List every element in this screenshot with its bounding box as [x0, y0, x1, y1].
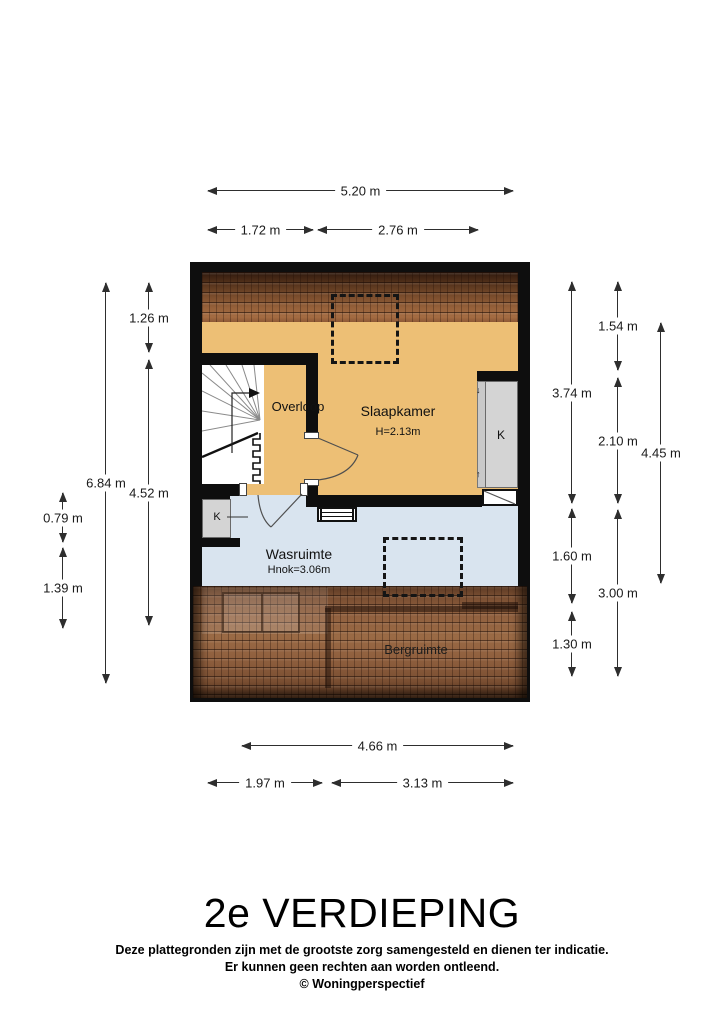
dim-label: 1.30 m	[548, 636, 596, 653]
dim-right-wasruimte: 1.60 m	[571, 509, 572, 603]
dim-label: 1.60 m	[548, 548, 596, 565]
dim-label: 4.45 m	[637, 445, 685, 462]
arrow-left-icon	[331, 779, 341, 787]
roof-step-horizontal	[325, 606, 518, 612]
skylight-wasruimte	[383, 537, 463, 597]
dim-right-bergruimte: 1.30 m	[571, 612, 572, 676]
dim-right-lower: 3.00 m	[617, 510, 618, 676]
arrow-up-icon	[145, 359, 153, 369]
arrow-up-icon	[59, 547, 67, 557]
dim-left-total: 6.84 m	[105, 283, 106, 683]
dim-label: 1.39 m	[39, 580, 87, 597]
dim-right-slaapkamer: 3.74 m	[571, 282, 572, 503]
dim-label: 1.26 m	[125, 309, 173, 326]
dim-left-lower: 1.39 m	[62, 548, 63, 628]
arrow-right-icon	[504, 779, 514, 787]
dim-left-closet: 0.79 m	[62, 493, 63, 542]
dim-label: 2.76 m	[372, 223, 424, 238]
arrow-down-icon	[102, 674, 110, 684]
dim-label: 5.20 m	[335, 184, 387, 199]
roof-area-bergruimte	[193, 586, 527, 698]
dim-bottom-left: 1.97 m	[208, 782, 322, 783]
diagonal-box-line	[484, 491, 515, 504]
bergruimte-label: Bergruimte	[378, 642, 454, 657]
dim-label: 3.00 m	[594, 585, 642, 602]
wasruimte-label: Wasruimte	[239, 546, 359, 562]
arrow-down-icon	[614, 494, 622, 504]
arrow-down-icon	[145, 616, 153, 626]
arrow-left-icon	[207, 779, 217, 787]
arrow-up-icon	[614, 281, 622, 291]
dormer-outline	[222, 592, 300, 633]
arrow-left-icon	[207, 187, 217, 195]
floorplan-page: ↓ ↑ K K B	[0, 0, 724, 1024]
arrow-up-icon	[59, 492, 67, 502]
dim-label: 6.84 m	[82, 475, 130, 492]
arrow-down-icon	[614, 667, 622, 677]
dim-label: 4.66 m	[352, 739, 404, 754]
slaapkamer-height: H=2.13m	[338, 426, 458, 438]
arrow-up-icon	[614, 509, 622, 519]
arrow-up-icon	[102, 282, 110, 292]
dim-top-total: 5.20 m	[208, 190, 513, 191]
door-leaf-slaapkamer	[318, 438, 358, 455]
dim-label: 1.72 m	[235, 223, 287, 238]
dim-bottom-right: 3.13 m	[332, 782, 513, 783]
arrow-down-icon	[568, 667, 576, 677]
arrow-down-icon	[568, 494, 576, 504]
dim-left-inner: 4.52 m	[148, 360, 149, 625]
arrow-down-icon	[614, 361, 622, 371]
arrow-up-icon	[145, 282, 153, 292]
arrow-down-icon	[657, 574, 665, 584]
arrow-down-icon	[59, 533, 67, 543]
door-arc-wasruimte	[258, 495, 271, 527]
arrow-left-icon	[207, 226, 217, 234]
dim-top-right: 2.76 m	[318, 229, 478, 230]
disclaimer-line-2: Er kunnen geen rechten aan worden ontlee…	[0, 959, 724, 976]
dim-right-total: 4.45 m	[660, 323, 661, 583]
arrow-down-icon	[145, 343, 153, 353]
arrow-up-icon	[568, 611, 576, 621]
dim-label: 1.54 m	[594, 318, 642, 335]
dim-bottom-total: 4.66 m	[242, 745, 513, 746]
dim-label: 4.52 m	[125, 484, 173, 501]
arrow-down-icon	[59, 619, 67, 629]
arrow-up-icon	[568, 508, 576, 518]
arrow-right-icon	[504, 742, 514, 750]
door-arc-slaapkamer	[318, 455, 358, 480]
arrow-right-icon	[304, 226, 314, 234]
roof-light-zone	[202, 588, 328, 634]
arrow-down-icon	[568, 594, 576, 604]
disclaimer-line-1: Deze plattegronden zijn met de grootste …	[0, 942, 724, 959]
arrow-up-icon	[657, 322, 665, 332]
arrow-right-icon	[469, 226, 479, 234]
arrow-right-icon	[504, 187, 514, 195]
copyright-line: © Woningperspectief	[0, 976, 724, 993]
skylight-slaapkamer	[331, 294, 399, 364]
roof-dark-bar	[462, 602, 518, 609]
dim-label: 0.79 m	[39, 509, 87, 526]
dim-right-roof: 1.54 m	[617, 282, 618, 370]
dim-left-roof: 1.26 m	[148, 283, 149, 352]
page-title: 2e VERDIEPING	[0, 890, 724, 937]
wasruimte-height: Hnok=3.06m	[239, 564, 359, 576]
overloop-label: Overloop	[258, 399, 338, 414]
arrow-up-icon	[568, 281, 576, 291]
arrow-left-icon	[241, 742, 251, 750]
arrow-up-icon	[614, 377, 622, 387]
dormer-divider	[261, 594, 263, 631]
dim-label: 3.13 m	[397, 776, 449, 791]
arrow-right-icon	[313, 779, 323, 787]
dim-label: 1.97 m	[239, 776, 291, 791]
dim-label: 3.74 m	[548, 384, 596, 401]
roof-step-vertical	[325, 608, 331, 688]
slaapkamer-label: Slaapkamer	[338, 403, 458, 419]
arrow-left-icon	[317, 226, 327, 234]
disclaimer: Deze plattegronden zijn met de grootste …	[0, 942, 724, 993]
door-leaf-wasruimte	[271, 494, 302, 527]
dim-right-closet: 2.10 m	[617, 378, 618, 503]
dim-top-left: 1.72 m	[208, 229, 313, 230]
dim-label: 2.10 m	[594, 432, 642, 449]
